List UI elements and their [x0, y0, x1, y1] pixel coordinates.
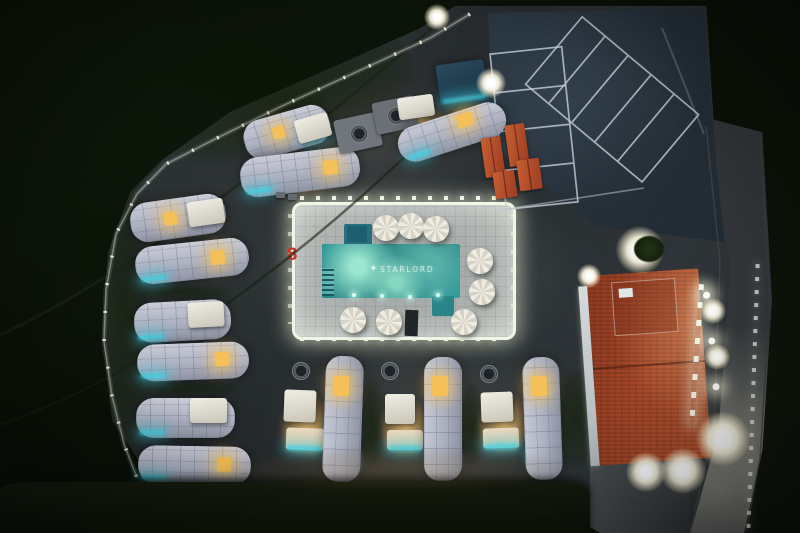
side-canopy	[480, 391, 513, 422]
equipment-box	[288, 194, 297, 200]
side-canopy	[187, 301, 224, 328]
hot-tub	[292, 362, 310, 380]
bungalow-capsule-left-2	[133, 236, 250, 286]
side-canopy	[186, 198, 225, 228]
daybed	[483, 427, 520, 448]
side-canopy	[283, 389, 316, 422]
floodlight	[476, 68, 506, 98]
tree-canopy	[634, 236, 664, 262]
roof-upper-section	[611, 278, 679, 336]
terracotta-canopy-4	[516, 158, 543, 192]
cyan-accent-light	[139, 430, 165, 435]
terracotta-canopy-3	[492, 170, 518, 200]
capsule-skylight-window	[163, 211, 178, 226]
floodlight	[577, 264, 601, 288]
floodlight	[700, 298, 726, 324]
cyan-accent-light	[442, 94, 486, 104]
capsule-skylight-window	[432, 376, 448, 396]
side-canopy	[385, 394, 415, 424]
bottom-vegetation	[0, 482, 590, 533]
daybed	[387, 430, 423, 450]
facade-light	[712, 383, 719, 390]
capsule-skylight-window	[455, 111, 474, 128]
cyan-accent-light	[140, 275, 166, 283]
floodlight	[696, 412, 750, 466]
hot-tub	[480, 365, 498, 383]
daybed	[286, 427, 325, 450]
capsule-skylight-window	[210, 250, 225, 265]
side-canopy	[190, 398, 227, 423]
capsule-skylight-window	[271, 125, 286, 140]
capsule-skylight-window	[215, 352, 229, 366]
capsule-skylight-window	[323, 159, 339, 175]
floodlight	[704, 344, 730, 370]
floodlight	[660, 448, 706, 494]
capsule-skylight-window	[333, 376, 350, 397]
capsule-skylight-window	[531, 376, 548, 397]
equipment-box	[276, 192, 285, 198]
cyan-accent-light	[138, 334, 164, 340]
cyan-accent-light	[140, 373, 166, 379]
cyan-accent-light	[407, 149, 431, 161]
floodlight	[424, 4, 450, 30]
lit-ground-strip	[225, 448, 565, 490]
aerial-resort-photo: ✦ STARLORD 8	[0, 0, 800, 533]
roof-ridge	[593, 360, 705, 370]
bungalow-capsule-left-4	[136, 341, 249, 382]
cyan-accent-light	[246, 187, 272, 195]
cyan-accent-light	[141, 475, 167, 480]
roof-vent	[618, 288, 633, 298]
hot-tub	[381, 362, 399, 380]
hot-tub	[349, 123, 370, 144]
